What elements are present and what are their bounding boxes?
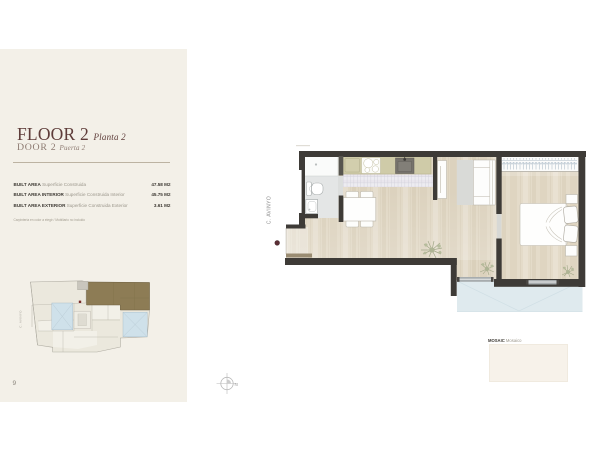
svg-text:C. AVINYO: C. AVINYO (267, 196, 273, 224)
svg-text:N: N (235, 382, 238, 387)
